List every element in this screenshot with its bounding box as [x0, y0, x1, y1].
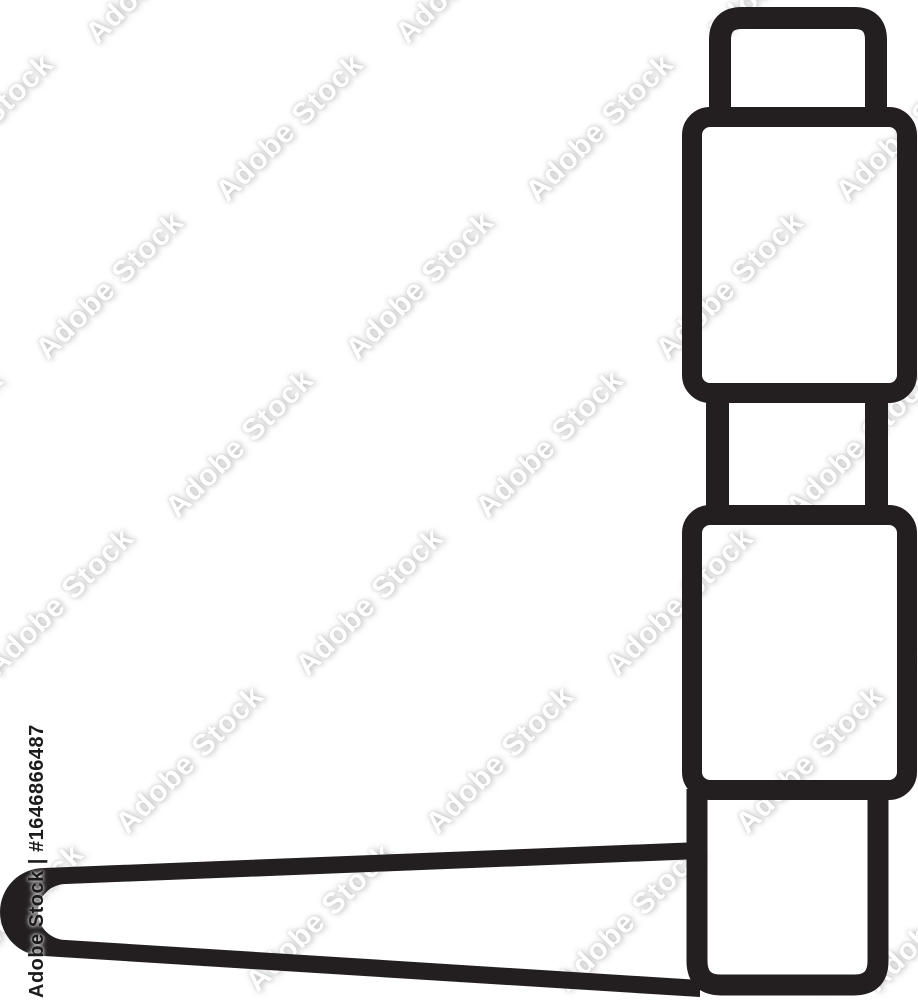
stock-image-preview: Adobe StockAdobe StockAdobe StockAdobe S…	[0, 0, 918, 1000]
handle-grip-segment	[697, 789, 878, 985]
stock-id-watermark: Adobe Stock | #1646866487	[26, 724, 49, 998]
lever-arm	[0, 842, 700, 997]
handle-lower-block	[692, 515, 907, 790]
handle-cap	[720, 18, 876, 118]
handle-connector-segment	[718, 392, 877, 518]
tuning-hammer-icon	[0, 0, 918, 1000]
handle-upper-block	[692, 117, 907, 393]
